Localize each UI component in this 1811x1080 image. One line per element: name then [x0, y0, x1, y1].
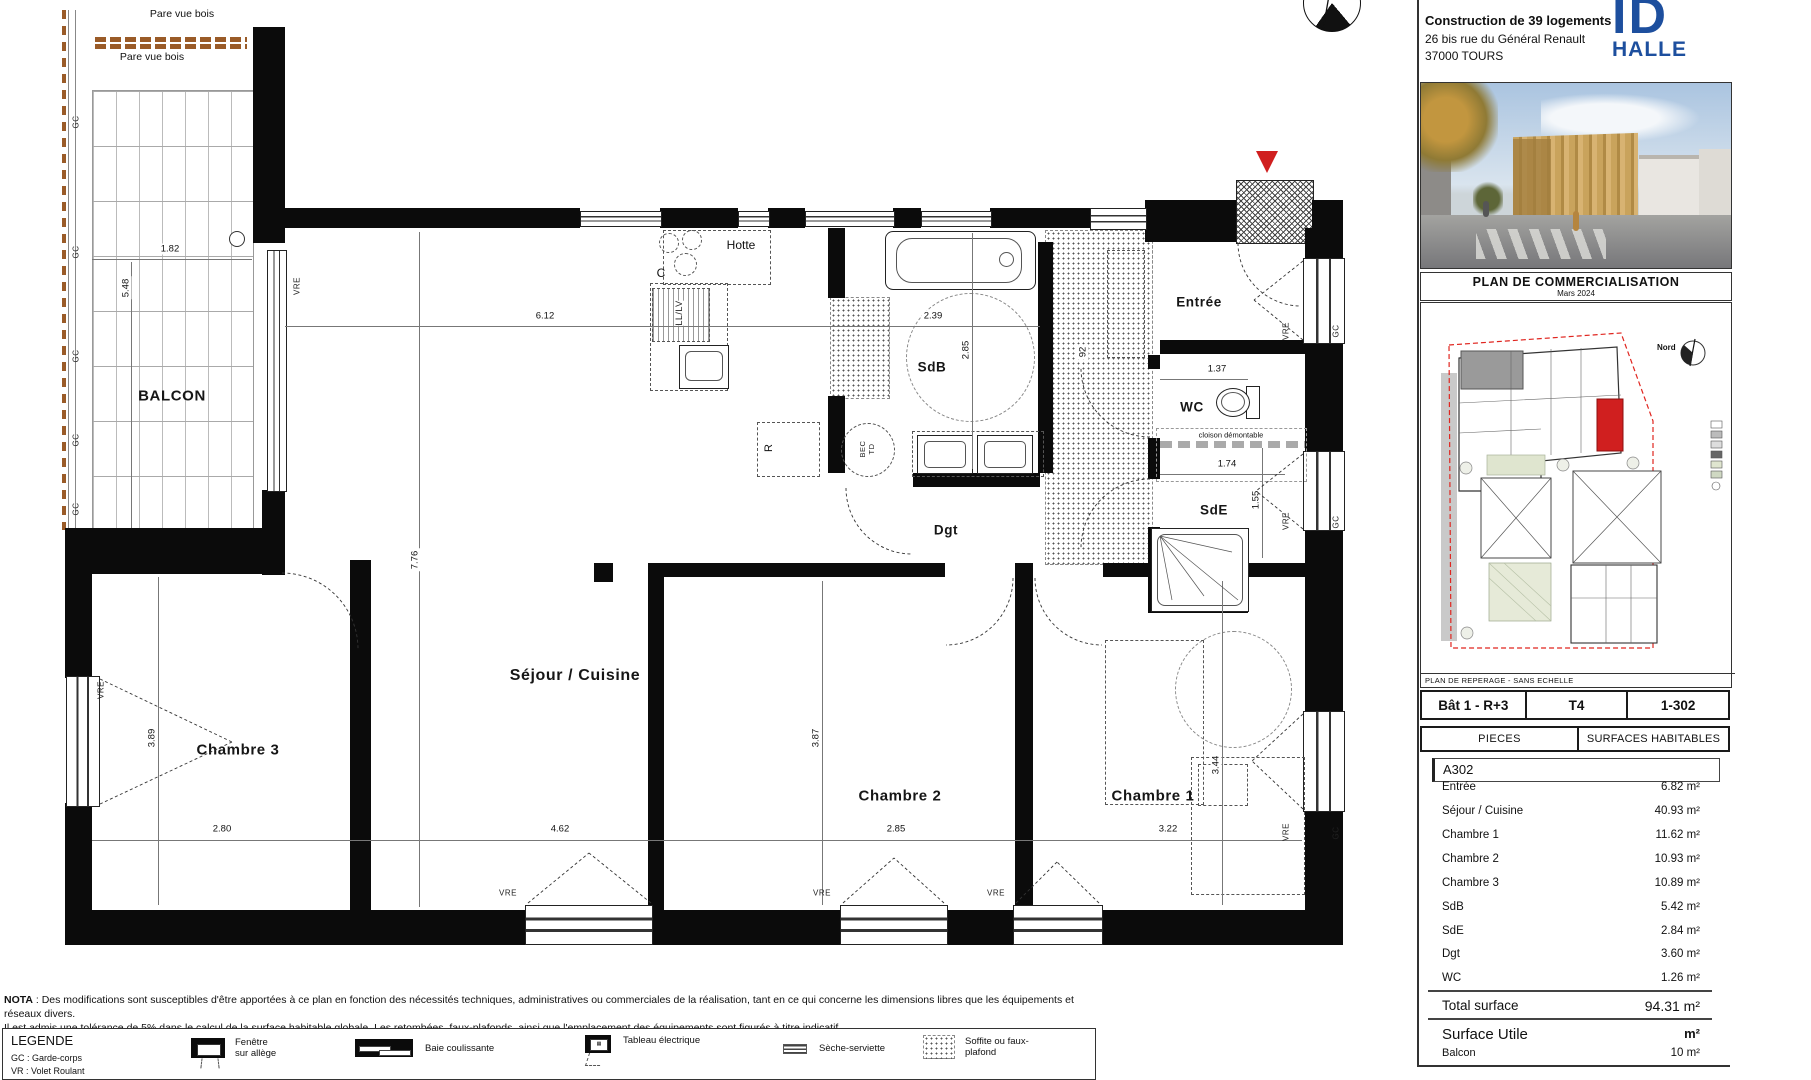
bec-td-label: BEC TD — [858, 437, 876, 461]
wall — [648, 563, 664, 910]
wall — [768, 208, 805, 228]
nota-title: NOTA — [4, 994, 33, 1006]
dim-wc-w: 1.37 — [1206, 364, 1229, 375]
cloison-demontable-label: cloison démontable — [1197, 431, 1266, 440]
balcony-drain — [229, 231, 245, 247]
unit-code-box: A302 — [1432, 758, 1720, 782]
gc-label: GC — [72, 116, 81, 129]
vre-label: VRE — [499, 889, 517, 898]
dim-ch3-h: 3.89 — [147, 727, 158, 750]
soffite-icon — [923, 1035, 955, 1059]
pare-vue-label: Pare vue bois — [120, 51, 184, 63]
entrance-marker — [1256, 151, 1278, 173]
wall — [1160, 340, 1305, 354]
wall — [1100, 910, 1343, 945]
total-value: 94.31 m² — [1645, 998, 1700, 1014]
wall — [285, 208, 580, 228]
row-room: Séjour / Cuisine — [1442, 805, 1523, 817]
balcony-guardrail — [62, 10, 66, 530]
utile-label: Surface Utile — [1442, 1026, 1528, 1043]
unit-strip: Bât 1 - R+3 T4 1-302 — [1420, 690, 1730, 720]
utile-value: m² — [1684, 1026, 1700, 1043]
turning-circle-chambre1 — [1175, 631, 1292, 748]
vre-label: VRE — [293, 277, 302, 295]
row-room: Chambre 2 — [1442, 853, 1499, 865]
closet-entree — [1107, 250, 1145, 358]
duct-hatch — [830, 297, 890, 399]
balcony-row: Balcon 10 m² — [1442, 1047, 1700, 1059]
table-row: Chambre 210.93 m² — [1442, 853, 1700, 865]
dim-sdb-h: 2.85 — [961, 339, 972, 362]
window-top-3 — [805, 211, 895, 227]
north-label: Nord — [1657, 343, 1676, 352]
surface-utile-row: Surface Utile m² — [1442, 1026, 1700, 1043]
table-row: SdB5.42 m² — [1442, 901, 1700, 913]
legend-abbr-gc: GC : Garde-corps — [11, 1053, 82, 1063]
window-chambre1-east — [1303, 711, 1345, 812]
dim-wc-d: 92 — [1078, 345, 1089, 360]
hob-burner — [659, 233, 679, 253]
dim-sejour-w: 6.12 — [534, 311, 557, 322]
unit-code: A302 — [1435, 759, 1719, 777]
total-row: Total surface 94.31 m² — [1442, 998, 1700, 1014]
row-surface: 3.60 m² — [1661, 948, 1700, 960]
photo-pedestrian — [1573, 211, 1579, 231]
wall — [262, 490, 285, 575]
wall — [945, 910, 1013, 945]
kitchen-sink-basin — [685, 351, 723, 381]
photo-building-right2 — [1699, 149, 1731, 219]
project-header: Construction de 39 logements 26 bis rue … — [1425, 12, 1615, 66]
row-surface: 1.26 m² — [1661, 972, 1700, 984]
wall — [1305, 527, 1343, 713]
room-label-chambre1: Chambre 1 — [1112, 788, 1195, 805]
photo-tree-left — [1420, 82, 1498, 172]
dim-sdb-w: 2.39 — [922, 311, 945, 322]
caption-subtitle: Mars 2024 — [1421, 289, 1731, 298]
room-label-wc: WC — [1180, 400, 1204, 415]
row-surface: 5.42 m² — [1661, 901, 1700, 913]
room-label-entree: Entrée — [1176, 295, 1222, 310]
vanity-sink-basin — [984, 441, 1026, 468]
room-label-chambre3: Chambre 3 — [197, 742, 280, 759]
dim-sde-w: 1.74 — [1216, 459, 1239, 470]
vre-label: VRE — [1282, 512, 1291, 530]
window-bottom-chambre2 — [840, 905, 948, 945]
pillow-chambre1 — [1198, 764, 1248, 806]
gc-label: GC — [72, 503, 81, 516]
hob-burner — [674, 253, 697, 276]
table-row: Séjour / Cuisine40.93 m² — [1442, 805, 1700, 817]
project-title: Construction de 39 logements — [1425, 12, 1615, 31]
photo-crosswalk — [1476, 229, 1606, 259]
legend-label: Fenêtre sur allège — [235, 1037, 283, 1060]
window-top-2 — [738, 211, 770, 227]
table-row: Chambre 111.62 m² — [1442, 829, 1700, 841]
balcony-guardrail-line — [68, 10, 76, 530]
vre-label: VRE — [813, 889, 831, 898]
balcony-label: Balcon — [1442, 1047, 1476, 1059]
legend-item-seche: Sèche-serviette — [783, 1043, 885, 1054]
vre-label: VRE — [1282, 322, 1291, 340]
wall — [65, 528, 262, 560]
window-top-entree — [1090, 208, 1147, 230]
table-row: WC1.26 m² — [1442, 972, 1700, 984]
wall — [65, 560, 92, 678]
photo-cyclist — [1483, 201, 1489, 217]
window-top-4 — [921, 211, 992, 227]
wall — [664, 563, 945, 577]
legend-abbr-vr: VR : Volet Roulant — [11, 1066, 85, 1076]
floor-plan-sheet: Pare vue bois Pare vue bois BALCON GC GC… — [0, 0, 1811, 1080]
cooktop-label: C — [657, 266, 666, 280]
row-surface: 2.84 m² — [1661, 925, 1700, 937]
gc-label: GC — [72, 350, 81, 363]
gc-label: GC — [1332, 827, 1341, 840]
window-bottom-sejour — [525, 905, 653, 945]
row-surface: 11.62 m² — [1655, 829, 1700, 841]
row-room: WC — [1442, 972, 1461, 984]
landing-hatch — [1236, 180, 1314, 244]
table-divider — [1428, 990, 1712, 992]
wall — [1103, 563, 1150, 577]
wall — [253, 27, 285, 243]
vre-label: VRE — [97, 681, 106, 699]
total-label: Total surface — [1442, 998, 1519, 1014]
dim-ch1-w: 3.22 — [1157, 824, 1180, 835]
row-room: Chambre 3 — [1442, 877, 1499, 889]
wall — [1015, 563, 1033, 910]
row-surface: 6.82 m² — [1661, 781, 1700, 793]
table-row: Dgt3.60 m² — [1442, 948, 1700, 960]
room-label-balcon: BALCON — [138, 388, 206, 405]
window-top-1 — [580, 211, 662, 227]
fridge-label: R — [763, 444, 775, 452]
wall — [1145, 200, 1236, 242]
wood-screen-bar — [95, 44, 247, 49]
wall — [1148, 355, 1160, 369]
row-room: Dgt — [1442, 948, 1460, 960]
photo-building-main-side — [1513, 139, 1551, 223]
wall — [650, 910, 840, 945]
site-plan-box: Nord PLAN DE REPERAGE - SANS ECHELLE — [1420, 302, 1732, 688]
wall — [828, 396, 845, 473]
panel-bottom-border — [1417, 1065, 1730, 1067]
legend-title: LEGENDE — [11, 1033, 73, 1048]
legend-label: Baie coulissante — [425, 1043, 494, 1054]
room-label-dgt: Dgt — [934, 523, 958, 538]
vre-label: VRE — [987, 889, 1005, 898]
wall — [990, 208, 1090, 228]
dim-ch2-w: 2.85 — [885, 824, 908, 835]
balcony-value: 10 m² — [1671, 1047, 1700, 1059]
legend-box: LEGENDE GC : Garde-corps VR : Volet Roul… — [2, 1028, 1096, 1080]
hotte-label: Hotte — [727, 238, 756, 252]
photo-building-right — [1639, 155, 1701, 221]
wood-screen-bar — [95, 37, 247, 42]
dim-sejour-w2: 4.62 — [549, 824, 572, 835]
table-divider — [1428, 1018, 1712, 1020]
vre-label: VRE — [1282, 823, 1291, 841]
tableau-electrique-icon: ▦ — [585, 1035, 611, 1053]
room-label-sejour: Séjour / Cuisine — [510, 667, 641, 685]
dim-balcon-h: 5.48 — [121, 277, 132, 300]
baie-coulissante-icon — [355, 1039, 413, 1057]
nota-text1: : Des modifications sont susceptibles d'… — [4, 994, 1074, 1020]
col-pieces: PIECES — [1420, 726, 1579, 752]
legend-label: Soffite ou faux-plafond — [965, 1036, 1035, 1059]
project-address: 26 bis rue du Général Renault — [1425, 31, 1615, 48]
window-chambre3 — [66, 676, 100, 807]
wall — [350, 560, 371, 910]
gc-label: GC — [72, 434, 81, 447]
row-surface: 10.89 m² — [1655, 877, 1700, 889]
window-bay-balcony — [267, 250, 287, 492]
wall — [893, 208, 921, 228]
dim-ch1-h: 3.44 — [1211, 754, 1222, 777]
gc-label: GC — [72, 246, 81, 259]
floor-plan: Pare vue bois Pare vue bois BALCON GC GC… — [0, 0, 1360, 960]
ll-lv-label: LL/LV — [674, 300, 684, 325]
legend-item-baie: Baie coulissante — [355, 1039, 494, 1057]
wall — [65, 910, 525, 945]
gc-label: GC — [1332, 516, 1341, 529]
table-row: SdE2.84 m² — [1442, 925, 1700, 937]
unit-number: 1-302 — [1626, 690, 1730, 720]
project-city: 37000 TOURS — [1425, 48, 1615, 65]
bathtub-drain — [999, 252, 1014, 267]
pare-vue-label: Pare vue bois — [150, 8, 214, 20]
north-compass — [1303, 0, 1361, 32]
structural-pillar — [594, 563, 613, 582]
wall — [1305, 340, 1343, 453]
table-row: Chambre 310.89 m² — [1442, 877, 1700, 889]
hob-burner — [682, 230, 702, 250]
dim-sde-h: 1.55 — [1251, 489, 1262, 512]
row-room: SdE — [1442, 925, 1464, 937]
legend-label: Tableau électrique — [623, 1035, 700, 1046]
unit-type: T4 — [1525, 690, 1629, 720]
wall — [65, 803, 92, 912]
building-photo — [1420, 82, 1732, 269]
room-label-sdb: SdB — [918, 360, 947, 375]
surface-table-header: PIECES SURFACES HABITABLES — [1420, 726, 1730, 752]
legend-item-soffite: Soffite ou faux-plafond — [923, 1035, 1035, 1059]
legend-item-tableau: ▦ Tableau électrique — [585, 1035, 700, 1053]
wall — [1248, 563, 1305, 577]
wall — [92, 560, 280, 574]
vanity-sink-basin — [924, 441, 966, 468]
caption-title: PLAN DE COMMERCIALISATION — [1421, 275, 1731, 289]
balcony-grid — [92, 90, 254, 532]
legend-item-fenetre: Fenêtre sur allège — [191, 1037, 283, 1060]
dim-ch3-w: 2.80 — [211, 824, 234, 835]
site-plan-drawing — [1421, 303, 1729, 671]
legend-label: Sèche-serviette — [819, 1043, 885, 1054]
site-plan-footer: PLAN DE REPERAGE - SANS ECHELLE — [1421, 673, 1735, 687]
table-row: Entrée6.82 m² — [1442, 781, 1700, 793]
unit-building: Bât 1 - R+3 — [1420, 690, 1527, 720]
dim-sejour-h: 7.76 — [410, 549, 421, 572]
row-surface: 10.93 m² — [1655, 853, 1700, 865]
dim-balcon-w: 1.82 — [159, 244, 182, 255]
wall — [660, 208, 738, 228]
plan-caption: PLAN DE COMMERCIALISATION Mars 2024 — [1420, 272, 1732, 301]
company-logo: ID HALLE — [1612, 0, 1732, 62]
shower-basin — [1157, 534, 1243, 606]
row-room: Chambre 1 — [1442, 829, 1499, 841]
seche-serviette-icon — [783, 1044, 807, 1054]
toilet-seat — [1221, 392, 1245, 412]
row-room: SdB — [1442, 901, 1464, 913]
window-bottom-chambre1 — [1013, 905, 1103, 945]
nota-line1: NOTA : Des modifications sont susceptibl… — [4, 993, 1084, 1021]
dim-ch2-h: 3.87 — [811, 727, 822, 750]
row-surface: 40.93 m² — [1655, 805, 1700, 817]
wall — [828, 228, 845, 298]
gc-label: GC — [1332, 325, 1341, 338]
logo-id: ID — [1612, 0, 1732, 42]
wall — [1305, 228, 1343, 261]
panel-left-border — [1417, 0, 1419, 1067]
col-surfaces: SURFACES HABITABLES — [1577, 726, 1730, 752]
logo-halle: HALLE — [1612, 38, 1732, 62]
room-label-chambre2: Chambre 2 — [859, 788, 942, 805]
room-label-sde: SdE — [1200, 503, 1228, 518]
fenetre-allege-icon — [191, 1038, 225, 1058]
row-room: Entrée — [1442, 781, 1476, 793]
